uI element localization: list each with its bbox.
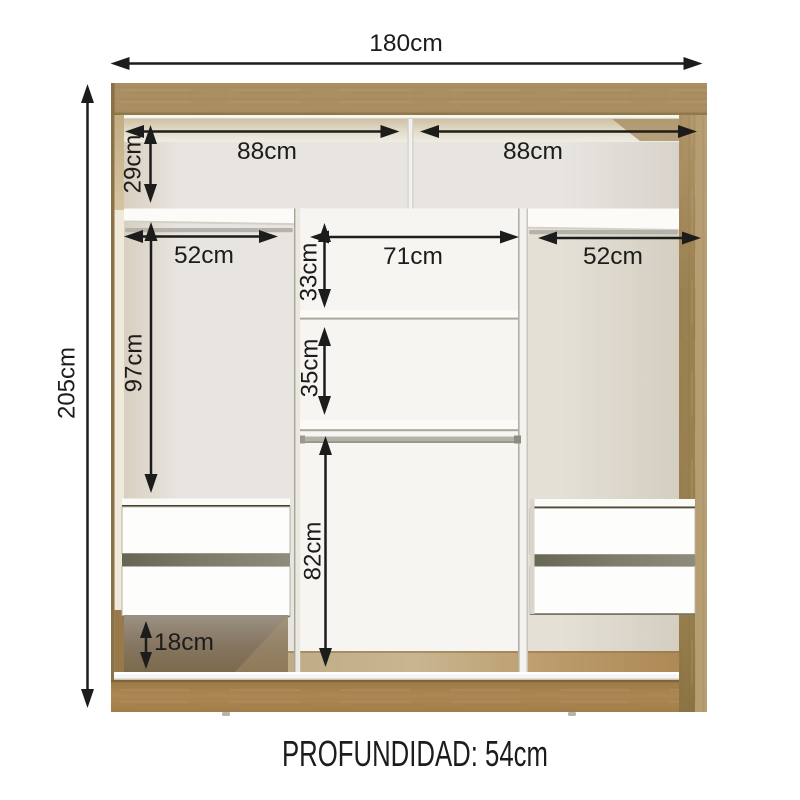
svg-text:35cm: 35cm — [296, 339, 323, 398]
svg-text:52cm: 52cm — [583, 243, 643, 270]
svg-text:52cm: 52cm — [174, 242, 234, 269]
svg-text:PROFUNDIDAD: 54cm: PROFUNDIDAD: 54cm — [282, 733, 548, 774]
svg-text:29cm: 29cm — [119, 135, 146, 194]
svg-text:82cm: 82cm — [299, 522, 326, 581]
svg-text:88cm: 88cm — [237, 138, 297, 165]
svg-text:88cm: 88cm — [503, 138, 563, 165]
svg-text:18cm: 18cm — [154, 629, 214, 656]
svg-text:33cm: 33cm — [295, 243, 322, 302]
svg-text:180cm: 180cm — [369, 30, 443, 57]
svg-text:97cm: 97cm — [120, 334, 147, 393]
svg-text:205cm: 205cm — [53, 347, 80, 419]
svg-text:71cm: 71cm — [383, 243, 443, 270]
